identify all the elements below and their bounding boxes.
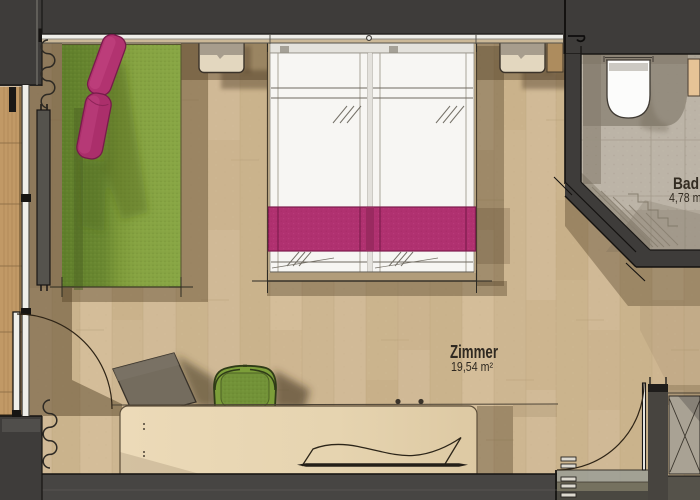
svg-text:19,54 m²: 19,54 m²	[451, 359, 494, 374]
svg-text:4,78 m²: 4,78 m²	[669, 191, 700, 205]
